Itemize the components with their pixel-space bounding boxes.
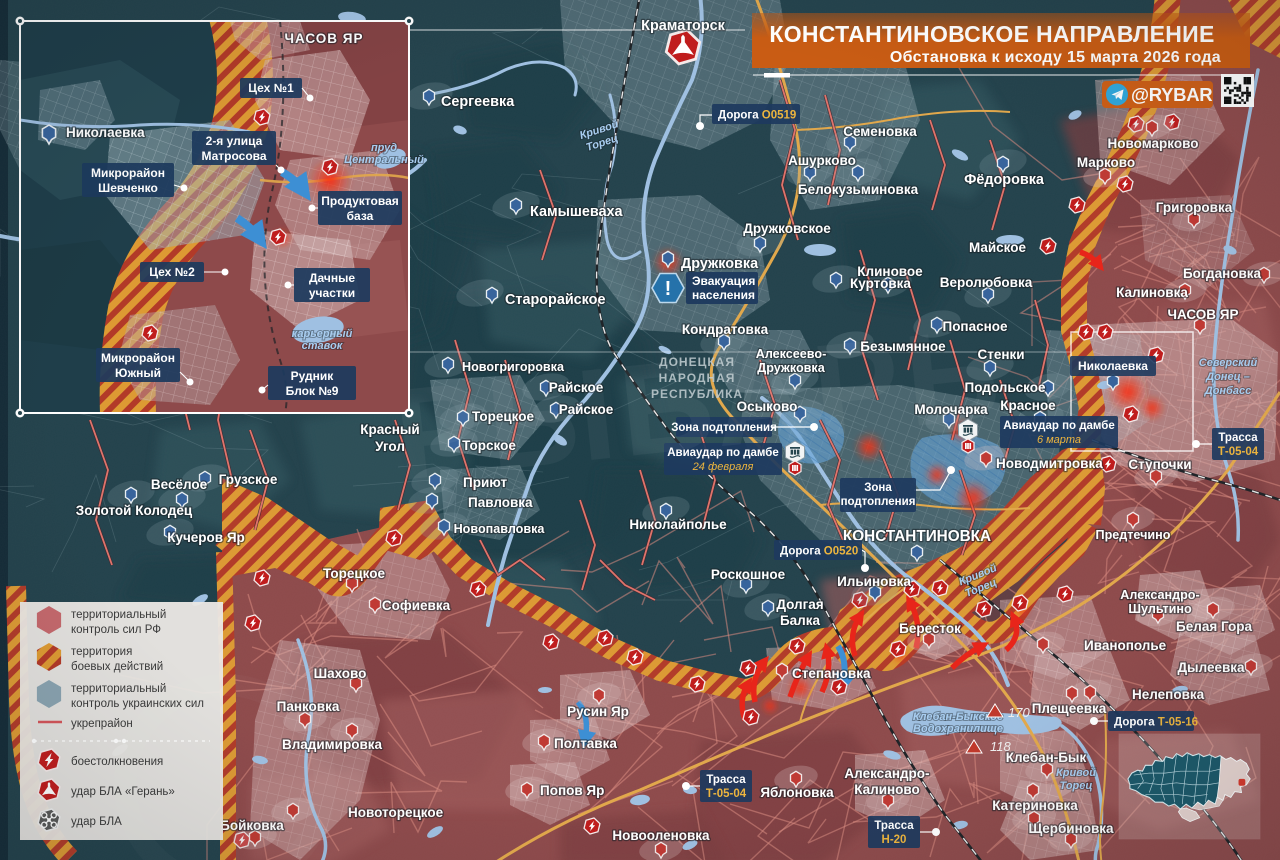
svg-text:боевых действий: боевых действий [71,661,163,673]
svg-text:удар БЛА «Герань»: удар БЛА «Герань» [71,786,175,798]
svg-text:Степановка: Степановка [792,666,871,681]
svg-text:Николаевка: Николаевка [66,125,145,140]
svg-text:Фёдоровка: Фёдоровка [964,172,1045,188]
svg-text:Донец –: Донец – [1205,371,1250,383]
svg-text:Балка: Балка [780,613,821,628]
svg-text:Т-05-04: Т-05-04 [1218,446,1259,458]
svg-text:Дружковское: Дружковское [743,221,831,236]
svg-text:Северский: Северский [1199,357,1258,369]
svg-text:Трасса: Трасса [874,820,914,832]
svg-text:Ступочки: Ступочки [1128,457,1191,472]
svg-text:Дорога О0520: Дорога О0520 [780,546,858,558]
svg-text:ставок: ставок [302,340,344,352]
svg-text:Старорайское: Старорайское [505,292,605,308]
svg-text:Краматорск: Краматорск [641,18,725,34]
svg-text:Николайполье: Николайполье [629,517,727,532]
svg-text:Т-05-04: Т-05-04 [706,788,747,800]
svg-text:Нелеповка: Нелеповка [1132,687,1205,702]
svg-text:Н-20: Н-20 [882,834,907,846]
svg-text:Предтечино: Предтечино [1096,528,1171,542]
svg-text:Новооленовка: Новооленовка [612,828,710,843]
svg-text:Шахово: Шахово [314,666,367,681]
svg-text:Кучеров Яр: Кучеров Яр [167,530,245,545]
svg-text:Новодмитровка: Новодмитровка [996,456,1103,471]
svg-text:Микрорайон: Микрорайон [91,166,165,180]
svg-text:ЧАСОВ ЯР: ЧАСОВ ЯР [284,31,363,46]
svg-text:территориальный: территориальный [71,683,166,695]
svg-text:Грузское: Грузское [219,472,278,487]
svg-text:Дачные: Дачные [309,271,355,285]
svg-text:КОНСТАНТИНОВКА: КОНСТАНТИНОВКА [843,528,991,545]
svg-text:Иванополье: Иванополье [1084,638,1167,653]
svg-text:Эвакуация: Эвакуация [692,274,755,288]
svg-text:Калиновка: Калиновка [1116,285,1188,300]
svg-text:ЧАСОВ ЯР: ЧАСОВ ЯР [1167,307,1238,322]
svg-text:Цех №2: Цех №2 [149,265,195,279]
svg-text:Новопавловка: Новопавловка [454,522,546,536]
svg-text:Григоровка: Григоровка [1156,200,1233,215]
svg-text:Клебан-Бык: Клебан-Бык [1006,750,1087,765]
svg-text:участки: участки [309,286,355,300]
svg-text:Красное: Красное [1000,398,1056,413]
svg-text:Веролюбовка: Веролюбовка [940,275,1033,290]
svg-text:!: ! [665,278,672,300]
svg-text:Донбасс: Донбасс [1204,385,1251,397]
svg-text:6 марта: 6 марта [1037,434,1081,446]
svg-text:Цех №1: Цех №1 [248,81,294,95]
svg-text:Дорога Т-05-16: Дорога Т-05-16 [1114,717,1198,729]
svg-text:Роскошное: Роскошное [711,567,786,582]
svg-text:территория: территория [71,646,132,658]
svg-text:Шультино: Шультино [1128,602,1192,616]
svg-text:Золотой Колодец: Золотой Колодец [76,503,193,518]
svg-text:Калиново: Калиново [854,782,920,797]
svg-text:Семеновка: Семеновка [843,124,917,139]
svg-text:Полтавка: Полтавка [554,736,617,751]
svg-text:Сергеевка: Сергеевка [441,94,515,110]
svg-text:Николаевка: Николаевка [1078,359,1148,373]
svg-text:Владимировка: Владимировка [282,737,383,752]
svg-text:Шевченко: Шевченко [98,181,158,195]
svg-text:карьерный: карьерный [292,328,353,340]
svg-text:Белокузьминовка: Белокузьминовка [798,182,919,197]
svg-text:Александро-: Александро- [844,766,929,781]
svg-text:Куртовка: Куртовка [850,276,911,291]
svg-text:Александро-: Александро- [1120,588,1199,602]
svg-text:Белая Гора: Белая Гора [1176,619,1252,634]
svg-text:контроль украинских сил: контроль украинских сил [71,698,204,710]
svg-text:Матросова: Матросова [201,149,266,163]
svg-text:Торец: Торец [1060,780,1093,792]
svg-text:Центральный: Центральный [344,154,424,166]
svg-text:Попов Яр: Попов Яр [540,783,604,798]
svg-text:Зона: Зона [864,482,892,494]
svg-text:Ильиновка: Ильиновка [837,574,911,589]
svg-text:Камышеваха: Камышеваха [530,204,624,220]
svg-text:Водохранилище: Водохранилище [913,723,1003,735]
svg-text:Обстановка к исходу 15 марта 2: Обстановка к исходу 15 марта 2026 года [890,49,1221,66]
svg-text:территориальный: территориальный [71,609,166,621]
svg-text:Катериновка: Катериновка [992,798,1078,813]
svg-text:база: база [347,209,374,223]
svg-text:Щербиновка: Щербиновка [1028,821,1114,836]
svg-text:170: 170 [1008,705,1030,720]
svg-text:Дылеевка: Дылеевка [1177,660,1245,675]
svg-text:Майское: Майское [969,240,1027,255]
svg-text:боестолкновения: боестолкновения [71,756,163,768]
svg-text:КОНСТАНТИНОВСКОЕ НАПРАВЛЕНИЕ: КОНСТАНТИНОВСКОЕ НАПРАВЛЕНИЕ [769,21,1214,47]
svg-text:Трасса: Трасса [706,774,746,786]
svg-text:Новомарково: Новомарково [1108,136,1199,151]
svg-text:Новоторецкое: Новоторецкое [348,805,444,820]
svg-text:Весёлое: Весёлое [151,477,208,492]
svg-text:Долгая: Долгая [776,597,823,612]
svg-text:2-я улица: 2-я улица [206,134,263,148]
svg-text:подтопления: подтопления [841,496,916,508]
svg-text:Рудник: Рудник [291,369,335,383]
svg-text:Трасса: Трасса [1218,432,1258,444]
svg-text:Яблоновка: Яблоновка [760,785,834,800]
svg-text:Авиаудар по дамбе: Авиаудар по дамбе [1003,420,1115,432]
svg-text:удар БЛА: удар БЛА [71,816,122,828]
svg-text:Марково: Марково [1077,155,1135,170]
svg-text:Продуктовая: Продуктовая [321,194,399,208]
svg-text:Южный: Южный [115,366,161,380]
svg-text:Ашурково: Ашурково [788,153,856,168]
svg-text:Дружковка: Дружковка [681,256,759,272]
svg-text:населения: населения [692,288,755,302]
svg-text:Плещеевка: Плещеевка [1032,701,1107,716]
svg-text:Блок №9: Блок №9 [286,384,339,398]
svg-text:Бойковка: Бойковка [220,818,284,833]
svg-text:Дорога О0519: Дорога О0519 [718,110,796,122]
svg-text:Микрорайон: Микрорайон [101,351,175,365]
svg-text:Русин Яр: Русин Яр [567,704,629,719]
svg-text:Софиевка: Софиевка [382,598,451,613]
svg-text:контроль сил РФ: контроль сил РФ [71,624,161,636]
svg-text:пруд: пруд [371,142,397,154]
svg-text:Богдановка: Богдановка [1183,266,1262,281]
svg-text:Торецкое: Торецкое [323,566,386,581]
svg-text:118: 118 [990,739,1011,754]
svg-text:@RYBAR: @RYBAR [1131,84,1212,105]
svg-text:укрепрайон: укрепрайон [71,718,133,730]
svg-text:Бересток: Бересток [899,621,961,636]
svg-text:Кривой: Кривой [1056,767,1096,779]
